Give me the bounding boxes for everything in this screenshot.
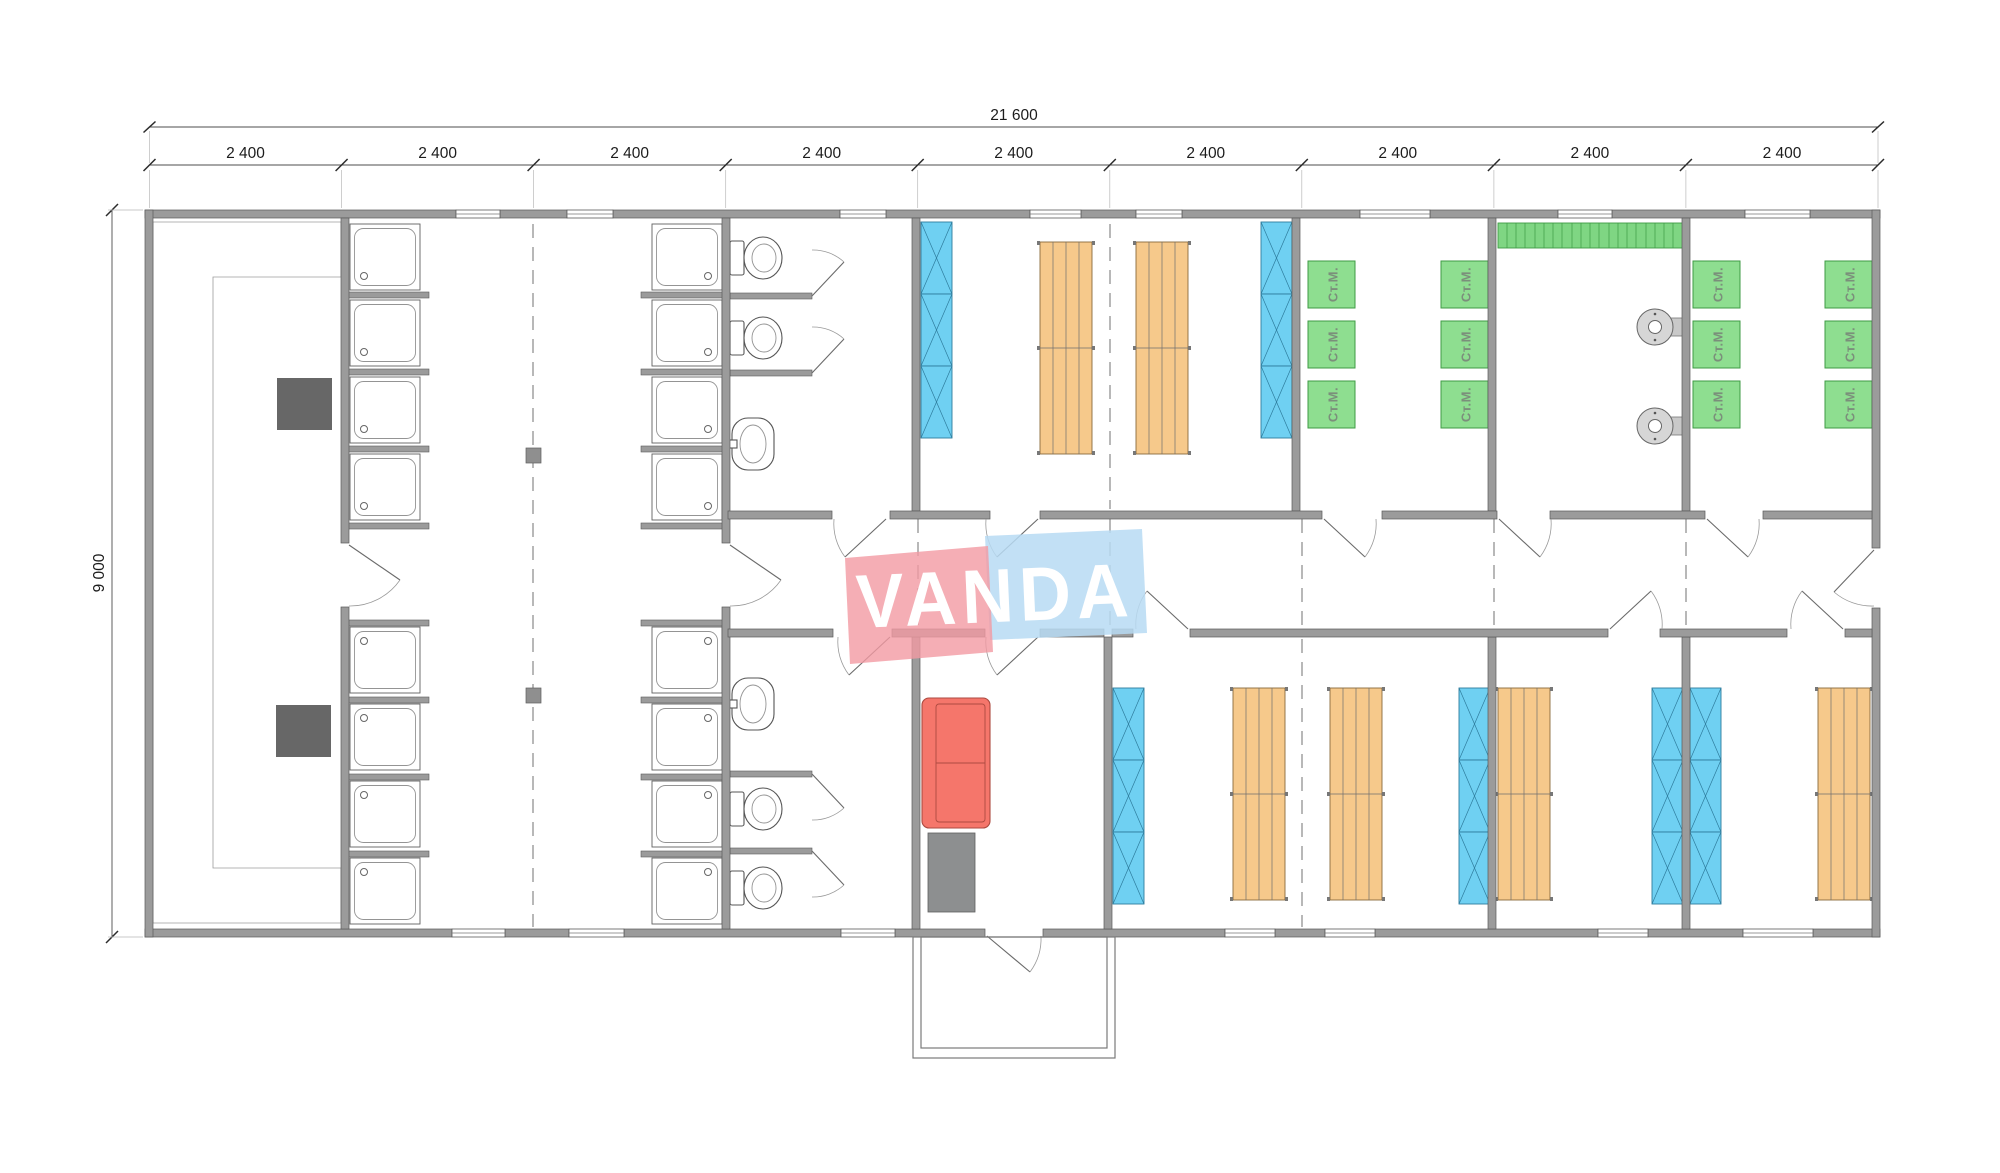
entrance-porch	[913, 937, 1115, 1058]
dimension-modules: 2 400 2 400 2 400 2 400 2 400 2 400 2 40…	[144, 145, 1885, 208]
hatched-shelf-band	[153, 222, 341, 923]
sink-icon	[729, 678, 774, 730]
washing-machine-icon	[1693, 261, 1740, 308]
bench-icon	[1498, 223, 1683, 248]
washing-machine-icon	[1825, 321, 1872, 368]
shower-cabin-icon	[350, 627, 420, 693]
room-bedroom-bottom-2	[1495, 687, 1683, 904]
shower-cabin-icon	[350, 704, 420, 770]
watermark-text: VANDA	[854, 548, 1135, 645]
bunk-bed-icon	[1815, 687, 1873, 901]
floor-plan-page: Ст.М. 21 600	[0, 0, 2000, 1173]
shower-cabin-icon	[350, 858, 420, 924]
locker-icon	[1113, 688, 1144, 904]
dim-label-module-9: 2 400	[1763, 145, 1802, 162]
dim-label-module-7: 2 400	[1378, 145, 1417, 162]
shower-cabin-icon	[652, 704, 722, 770]
dim-label-module-3: 2 400	[610, 145, 649, 162]
washing-machine-icon	[1308, 261, 1355, 308]
locker-icon	[1690, 688, 1721, 904]
washing-machine-icon	[1308, 381, 1355, 428]
sink-icon	[729, 418, 774, 470]
shower-cabin-icon	[652, 858, 722, 924]
bunk-bed-icon	[1495, 687, 1553, 901]
shower-cabin-icon	[652, 224, 722, 290]
toilet-icon	[730, 237, 782, 279]
washing-machine-icon	[1441, 321, 1488, 368]
locker-icon	[1459, 688, 1490, 904]
dim-label-module-1: 2 400	[226, 145, 265, 162]
locker-icon	[1652, 688, 1683, 904]
bunk-bed-icon	[1133, 241, 1191, 455]
room-washroom	[345, 224, 725, 924]
table-icon	[277, 378, 332, 430]
shower-cabin-icon	[652, 300, 722, 366]
shower-cabin-icon	[652, 781, 722, 847]
dim-label-module-8: 2 400	[1571, 145, 1610, 162]
shower-cabin-icon	[350, 224, 420, 290]
sofa-icon	[922, 698, 990, 828]
shower-cabin-icon	[350, 377, 420, 443]
watermark-vanda: VANDA	[845, 529, 1147, 664]
dimension-total-height: 9 000	[91, 204, 143, 943]
bunk-bed-icon	[1230, 687, 1288, 901]
table-icon	[276, 705, 331, 757]
module-joint-marker	[526, 448, 541, 463]
dim-label-total-height: 9 000	[91, 553, 108, 592]
room-bedroom-top	[921, 222, 1292, 455]
shower-cabin-icon	[350, 300, 420, 366]
shower-cabin-icon	[652, 627, 722, 693]
dim-label-module-6: 2 400	[1186, 145, 1225, 162]
dim-label-total-width: 21 600	[990, 107, 1038, 124]
dim-label-module-2: 2 400	[418, 145, 457, 162]
toilet-icon	[730, 788, 782, 830]
room-laundry-1	[1308, 261, 1488, 428]
dim-label-module-5: 2 400	[994, 145, 1033, 162]
table-icon	[928, 833, 975, 912]
shower-cabin-icon	[652, 454, 722, 520]
washing-machine-icon	[1693, 381, 1740, 428]
washing-machine-icon	[1693, 321, 1740, 368]
washing-machine-icon	[1308, 321, 1355, 368]
bunk-bed-icon	[1037, 241, 1095, 455]
shower-cabin-icon	[350, 781, 420, 847]
bunk-bed-icon	[1327, 687, 1385, 901]
washing-machine-icon	[1441, 381, 1488, 428]
room-drying-left	[153, 222, 341, 923]
room-wc-top	[729, 237, 844, 470]
washing-machine-icon	[1825, 261, 1872, 308]
room-dryer	[1498, 223, 1684, 444]
toilet-icon	[730, 867, 782, 909]
toilet-icon	[730, 317, 782, 359]
floor-plan-drawing: Ст.М. 21 600	[0, 0, 2000, 1173]
room-wc-bottom	[729, 678, 844, 909]
module-joint-marker	[526, 688, 541, 703]
locker-icon	[1261, 222, 1292, 438]
shower-cabin-icon	[652, 377, 722, 443]
washing-machine-icon	[1441, 261, 1488, 308]
washing-machine-icon	[1825, 381, 1872, 428]
locker-icon	[921, 222, 952, 438]
shower-cabin-icon	[350, 454, 420, 520]
room-bedroom-bottom-3	[1690, 687, 1873, 904]
boiler-icon	[1637, 408, 1684, 444]
room-laundry-2	[1693, 261, 1872, 428]
boiler-icon	[1637, 309, 1684, 345]
dim-label-module-4: 2 400	[802, 145, 841, 162]
room-entrance-hall	[922, 698, 990, 912]
